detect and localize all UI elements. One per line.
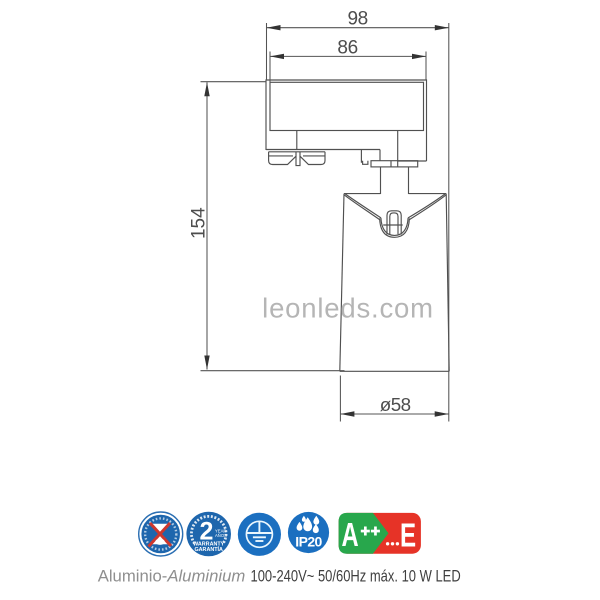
svg-text:IP20: IP20 [295,534,322,550]
svg-text:leonleds.com: leonleds.com [262,293,434,324]
svg-text:AÑOS: AÑOS [215,533,227,538]
svg-text:154: 154 [189,207,210,239]
svg-text:E: E [400,518,416,555]
svg-text:100-240V~ 50/60Hz máx. 10 W LE: 100-240V~ 50/60Hz máx. 10 W LED [251,567,461,586]
svg-text:GARANTÍA: GARANTÍA [194,545,223,553]
svg-text:86: 86 [337,37,357,58]
svg-text:Aluminio-Aluminium: Aluminio-Aluminium [98,566,246,585]
svg-text:98: 98 [348,9,368,30]
svg-text:A: A [342,517,359,554]
svg-text:ø58: ø58 [380,394,411,415]
